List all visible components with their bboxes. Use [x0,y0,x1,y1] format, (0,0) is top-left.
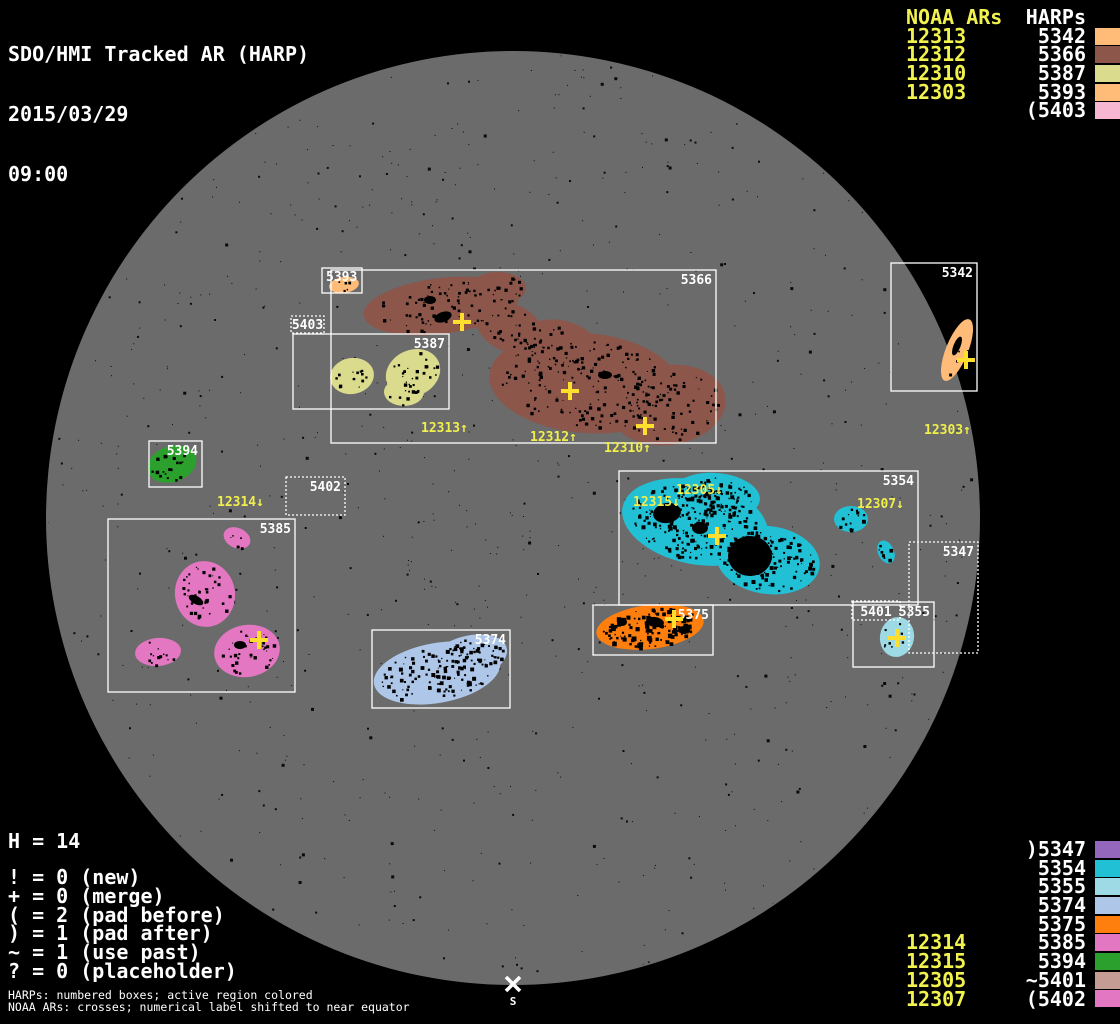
noaa-ar-label: 12310↑ [604,441,651,456]
harp-number: (5402 [1002,990,1086,1009]
harp-color-swatch [1095,84,1120,101]
sunspot [678,626,690,634]
noaa-ar-label: 12313↑ [421,421,468,436]
harp-box-label-5342: 5342 [942,266,973,281]
harp-color-swatch [1095,65,1120,82]
harp-box-label-5366: 5366 [681,273,712,288]
noaa-ar-label: 12305↓ [676,483,723,498]
noaa-ar-label: 12314↓ [217,495,264,510]
noaa-ar-label: 12312↑ [530,430,577,445]
harp-box-label-5403: 5403 [292,318,323,333]
harp-color-swatch [1095,972,1120,989]
sunspot [598,371,612,379]
south-pole-label: S [510,995,517,1008]
harp-count-line: H = 14 [8,829,80,853]
harp-color-swatch [1095,916,1120,933]
noaa-harp-legend-bottom: )534753545355537453751231453851231553941… [898,840,1120,1008]
harp-box-label-5394: 5394 [167,444,198,459]
noaa-ar-label: 12303↑ [924,423,971,438]
legend-row-5347: )5347 [898,840,1120,859]
harp-box-5403: 5403 [291,316,324,333]
legend-row-5355: 5355 [898,877,1120,896]
harp-box-label-5347: 5347 [943,545,974,560]
legend-row-5403: (5403 [898,101,1120,120]
harp-color-swatch [1095,934,1120,951]
harp-map-canvas: 5342536653935403538753945402538553745354… [0,0,1120,1024]
title-block: SDO/HMI Tracked AR (HARP) 2015/03/29 09:… [8,4,309,224]
harp-box-label-5393: 5393 [326,270,357,285]
legend-row-5374: 5374 [898,896,1120,915]
sunspot [424,296,436,304]
sunspot [617,618,627,626]
sunspot [234,641,246,649]
harp-color-swatch [1095,841,1120,858]
legend-row-5354: 5354 [898,859,1120,878]
noaa-ar-label: 12307↓ [857,497,904,512]
harp-box-label-5401: 5401 [860,605,891,620]
harp-box-label-5374: 5374 [475,633,506,648]
sunspot [692,522,708,534]
legend-row-5402: 12307(5402 [898,990,1120,1009]
page-title: SDO/HMI Tracked AR (HARP) [8,44,309,64]
flag-legend: ! = 0 (new)+ = 0 (merge)( = 2 (pad befor… [8,868,237,981]
sunspot [728,536,772,576]
harp-color-swatch [1095,860,1120,877]
noaa-ar-label: 12315↓ [633,495,680,510]
harp-color-swatch [1095,897,1120,914]
noaa-ar-number: 12303 [898,83,1002,102]
harp-color-swatch [1095,28,1120,45]
legend-row-5393: 123035393 [898,83,1120,102]
harp-box-label-5354: 5354 [883,474,914,489]
harp-number: (5403 [1002,101,1086,120]
swatch-spacer [1095,9,1120,26]
harp-box-label-5402: 5402 [310,480,341,495]
flag-legend-line: ? = 0 (placeholder) [8,962,237,981]
harp-box-label-5355: 5355 [899,605,930,620]
time-label: 09:00 [8,164,309,184]
harp-box-label-5387: 5387 [414,337,445,352]
harp-color-swatch [1095,878,1120,895]
harp-color-swatch [1095,990,1120,1007]
date-label: 2015/03/29 [8,104,309,124]
noaa-ar-number: 12307 [898,990,1002,1009]
noaa-harp-legend-top: NOAA ARs HARPs 1231353421231253661231053… [898,8,1120,120]
footnotes: HARPs: numbered boxes; active region col… [8,990,410,1013]
harp-box-label-5385: 5385 [260,522,291,537]
harp-color-swatch [1095,102,1120,119]
harp-color-swatch [1095,953,1120,970]
footnote-line: NOAA ARs: crosses; numerical label shift… [8,1002,410,1014]
harp-color-swatch [1095,46,1120,63]
